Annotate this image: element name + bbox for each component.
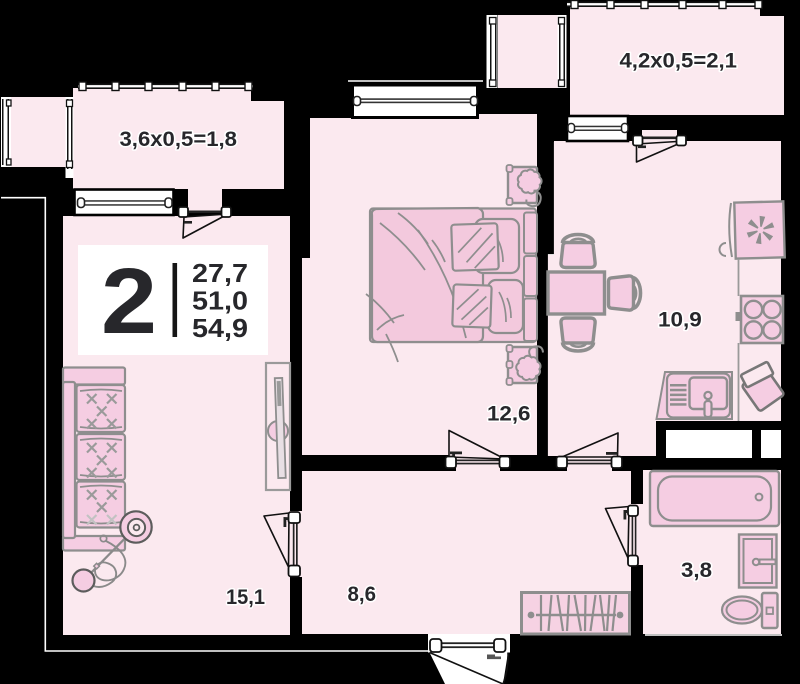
svg-text:8,6: 8,6 bbox=[348, 583, 377, 606]
svg-text:15,1: 15,1 bbox=[226, 586, 265, 609]
svg-text:2: 2 bbox=[101, 249, 157, 353]
svg-text:12,6: 12,6 bbox=[487, 403, 531, 426]
svg-text:4,2x0,5=2,1: 4,2x0,5=2,1 bbox=[620, 50, 738, 73]
svg-text:3,8: 3,8 bbox=[681, 559, 712, 582]
svg-text:27,7: 27,7 bbox=[192, 258, 248, 288]
svg-text:54,9: 54,9 bbox=[192, 313, 248, 343]
svg-text:3,6x0,5=1,8: 3,6x0,5=1,8 bbox=[120, 128, 238, 151]
svg-text:51,0: 51,0 bbox=[192, 286, 248, 316]
svg-text:10,9: 10,9 bbox=[658, 308, 702, 331]
